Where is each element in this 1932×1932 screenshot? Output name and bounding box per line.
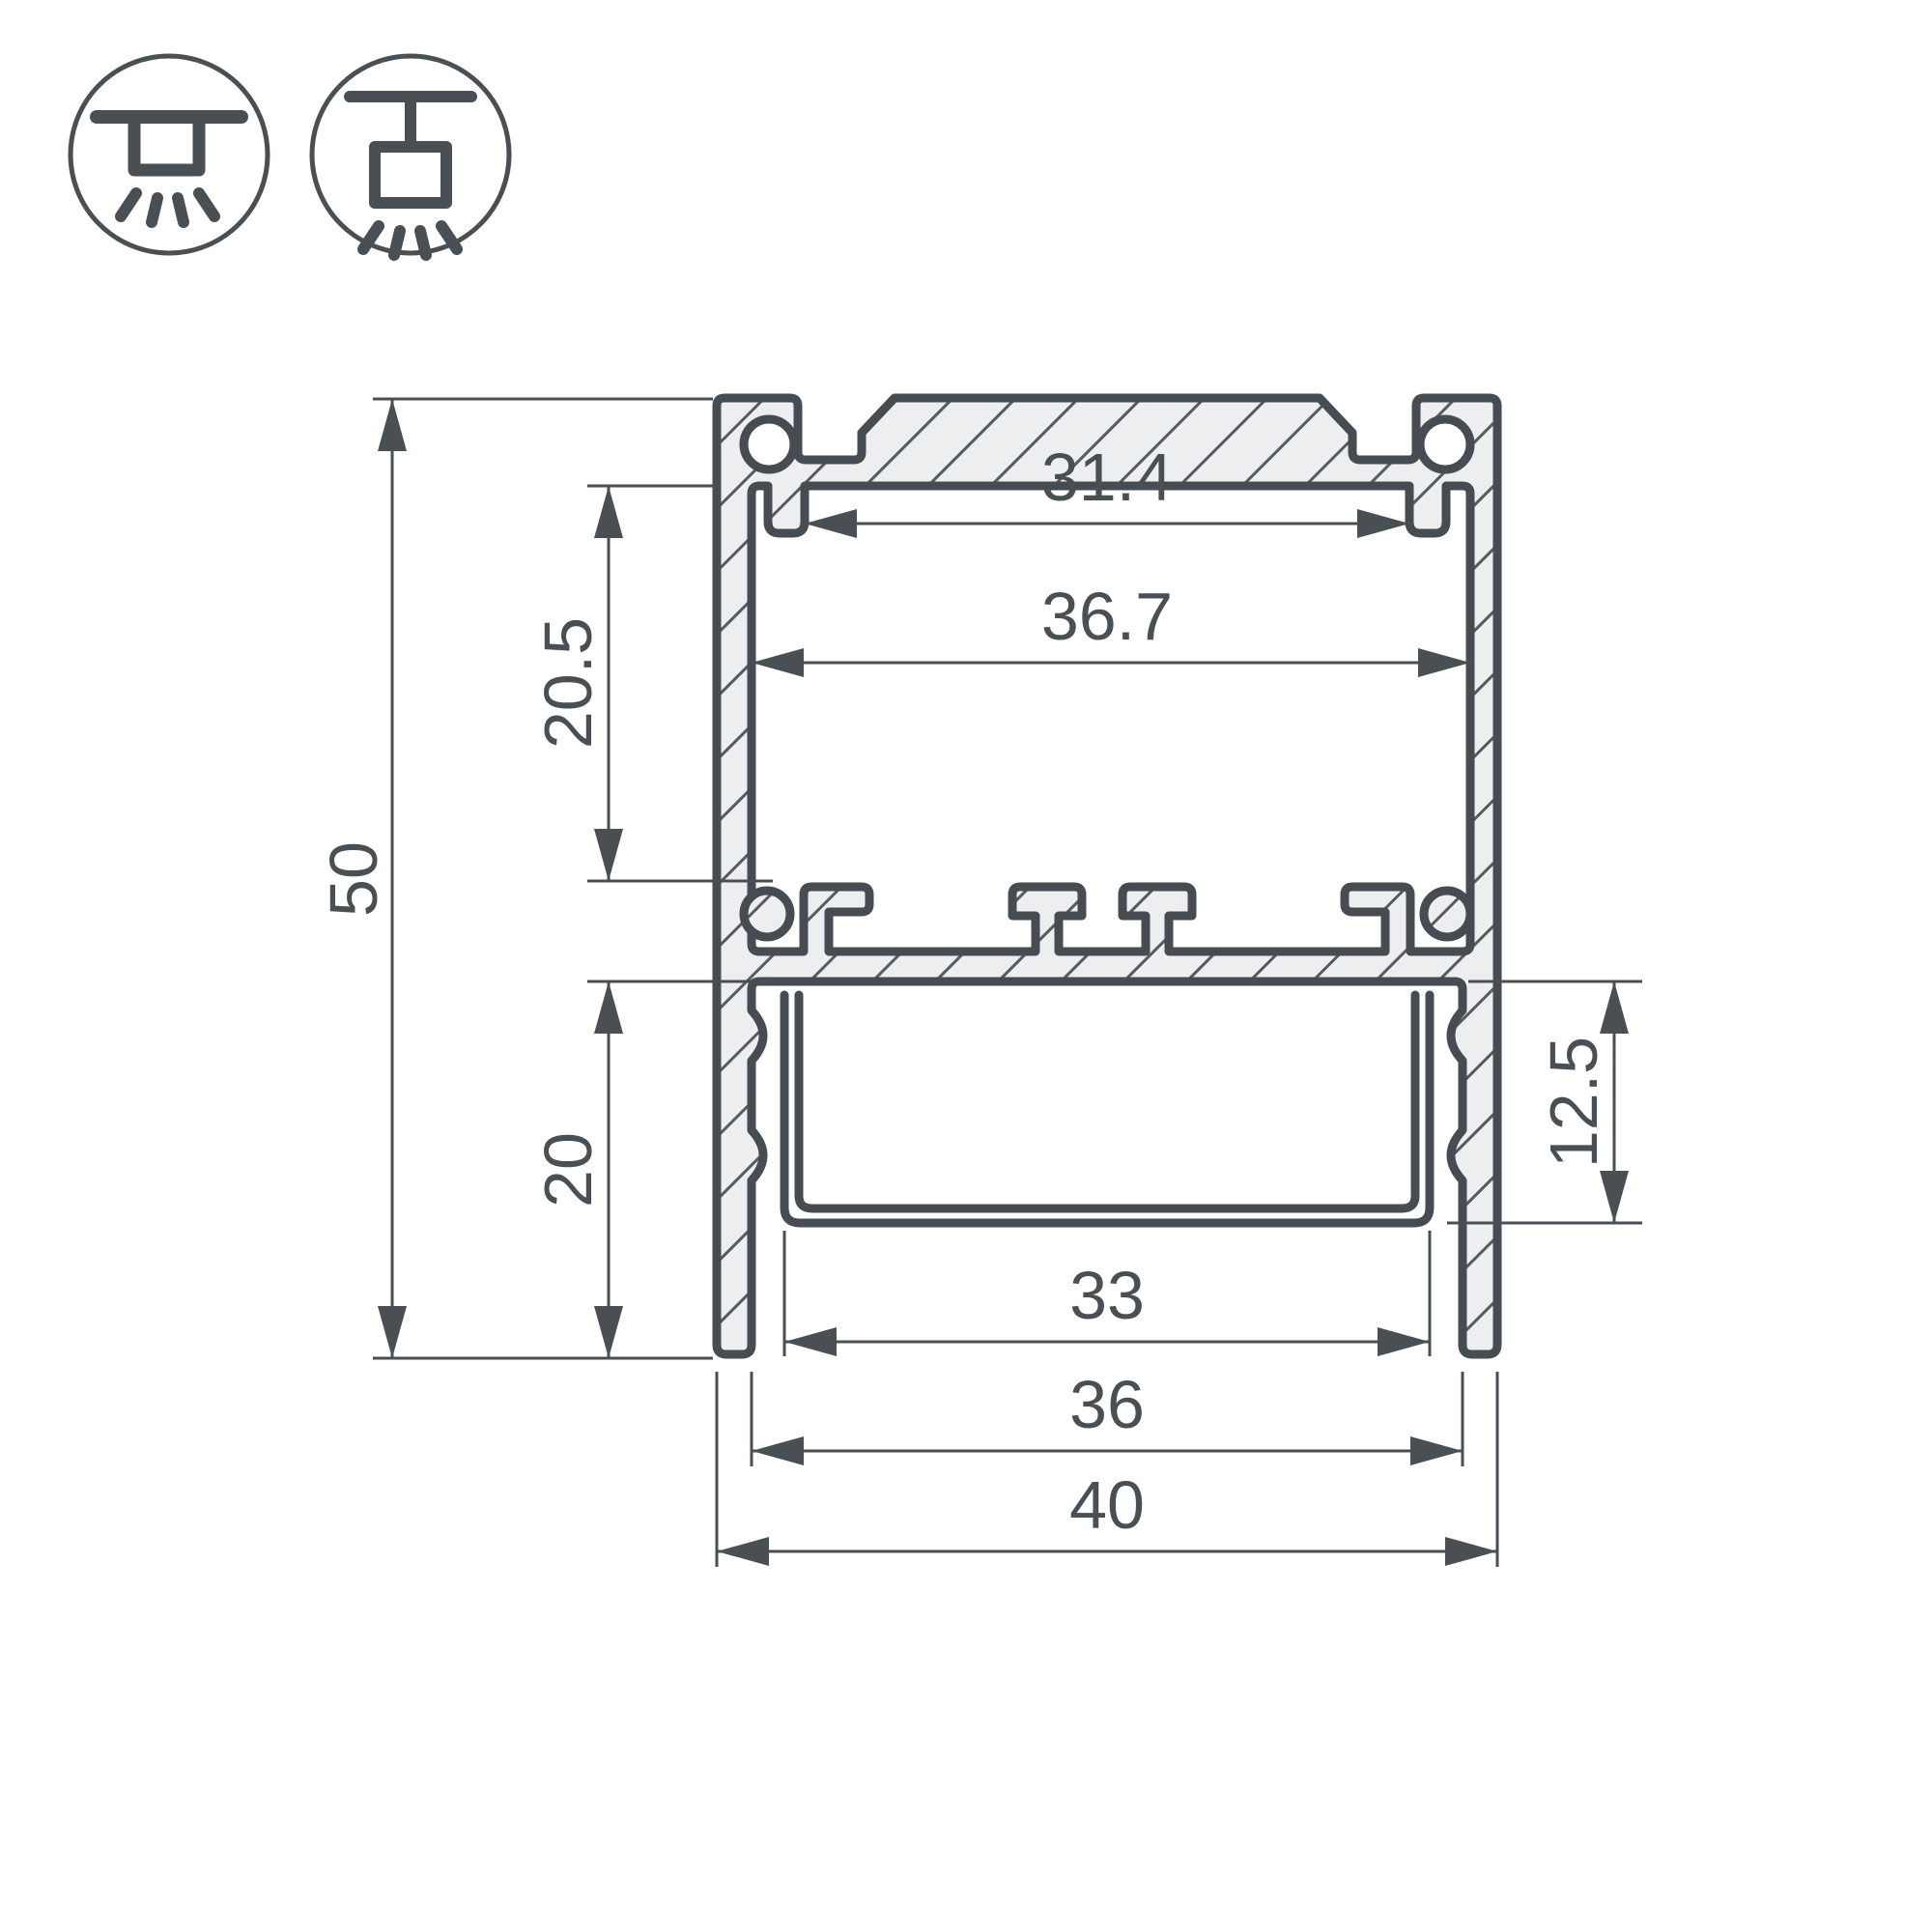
arrowhead [1445,1537,1497,1566]
dim-label-lower-chamber: 20 [530,1132,606,1207]
arrowhead [1357,509,1409,538]
arrowhead [378,1306,407,1358]
diffuser-outer [784,995,1430,1223]
fixture-box [375,147,446,203]
dim-inner-width: 36.7 [752,579,1470,677]
arrowhead [1600,1171,1629,1223]
dim-label-total-width: 40 [1069,1467,1145,1543]
arrowhead [594,829,623,881]
mounting-icons [71,56,509,255]
arrowhead [1600,981,1629,1034]
arrowhead [784,1327,837,1356]
arrowhead [805,509,857,538]
arrowhead [1418,648,1470,677]
arrowhead [594,981,623,1034]
arrowhead [594,1306,623,1358]
arrowhead [1410,1436,1463,1465]
drawing-page: 50 20.5 20 31.4 [0,0,1932,1932]
dim-total-height: 50 [316,399,713,1358]
surface-mount-icon [71,56,268,253]
dim-bottom-width: 36 [752,1367,1463,1466]
profile-cross-section [717,398,1497,1354]
technical-drawing: 50 20.5 20 31.4 [0,0,1932,1932]
dim-label-upper-chamber: 20.5 [530,617,606,749]
icon-circle [71,56,268,253]
screw-boss-left [744,891,790,937]
icon-circle [312,56,509,253]
dim-diffuser-width: 33 [784,1231,1430,1356]
fixture-box [134,120,199,170]
arrowhead [1378,1327,1430,1356]
dim-label-bottom-width: 36 [1069,1367,1145,1442]
arrowhead [752,1436,804,1465]
arrowhead [752,648,804,677]
dim-label-total-height: 50 [316,841,391,917]
dim-label-inner-width: 36.7 [1041,579,1173,654]
dim-label-top-opening: 31.4 [1041,440,1173,515]
arrowhead [594,486,623,538]
dim-label-diffuser-width: 33 [1069,1258,1145,1333]
light-rays [121,193,214,222]
screw-boss-right [1424,891,1470,937]
pendant-mount-icon [312,56,509,255]
dim-label-diffuser-depth: 12.5 [1536,1037,1611,1168]
arrowhead [717,1537,769,1566]
arrowhead [378,399,407,451]
